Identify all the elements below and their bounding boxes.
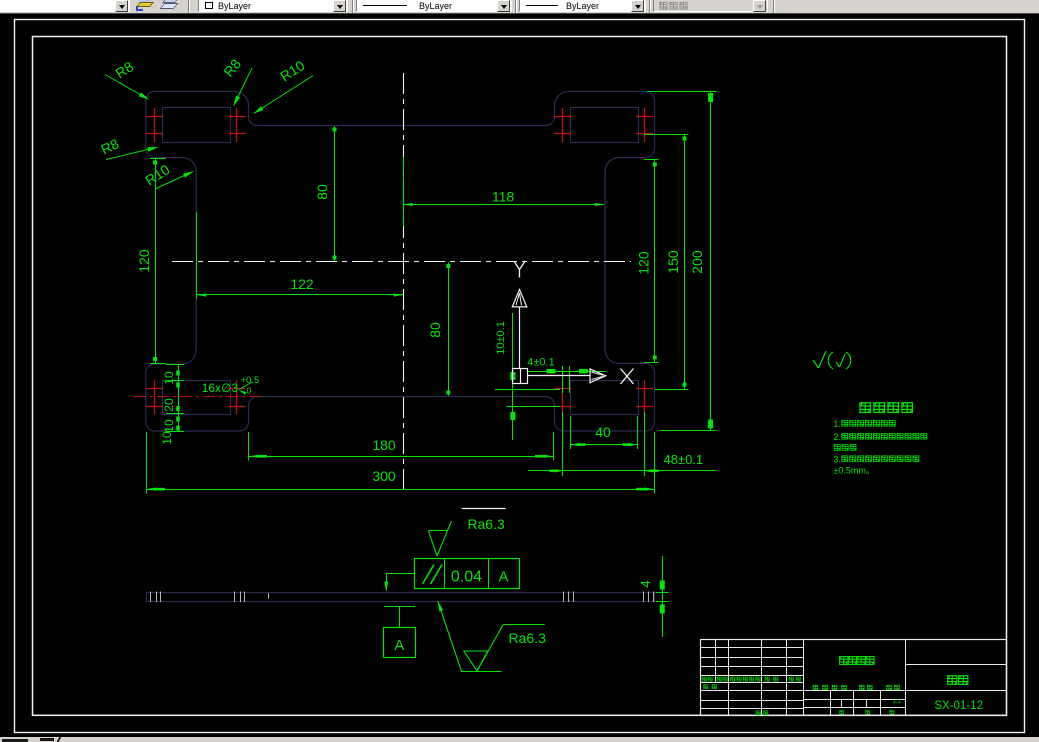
svg-text:180: 180 [372,437,396,453]
svg-text:1:1: 1:1 [893,699,902,705]
svg-text:200: 200 [689,250,705,274]
svg-text:48±0.1: 48±0.1 [664,452,704,467]
svg-text:4: 4 [638,580,653,587]
svg-text:3.: 3. [833,455,841,465]
svg-text:SX-01-12: SX-01-12 [934,700,983,712]
svg-text:118: 118 [492,189,515,205]
svg-text:R10: R10 [142,161,172,189]
svg-text:±0.5mm。: ±0.5mm。 [833,466,874,476]
svg-text:80: 80 [427,322,443,338]
svg-text:10: 10 [162,419,176,433]
svg-text:120: 120 [636,251,652,275]
svg-text:R8: R8 [112,58,136,81]
svg-text:R8: R8 [220,56,244,80]
svg-text:R10: R10 [277,57,307,85]
svg-text:10±0.1: 10±0.1 [495,321,507,355]
svg-text:Ra6.3: Ra6.3 [467,516,505,532]
svg-text:4±0.1: 4±0.1 [527,357,554,369]
svg-text:2.: 2. [833,432,841,442]
svg-text:0: 0 [247,386,252,396]
svg-text:+0.5: +0.5 [241,375,260,386]
svg-text:80: 80 [314,184,330,200]
svg-text:300: 300 [372,468,396,484]
svg-text:16x∅3: 16x∅3 [202,381,239,395]
svg-text:40: 40 [595,424,611,440]
svg-text:1.: 1. [833,419,841,429]
svg-text:Ra6.3: Ra6.3 [509,630,547,646]
svg-text:10: 10 [162,371,176,385]
svg-text:150: 150 [665,250,681,274]
svg-text:0.04: 0.04 [451,569,482,586]
svg-text:A: A [498,569,508,586]
svg-text:A: A [394,637,404,654]
svg-text:120: 120 [136,249,152,273]
svg-text:R8: R8 [98,135,121,157]
svg-text:122: 122 [290,276,314,292]
svg-text:20: 20 [162,398,176,412]
svg-text:10: 10 [160,431,174,445]
